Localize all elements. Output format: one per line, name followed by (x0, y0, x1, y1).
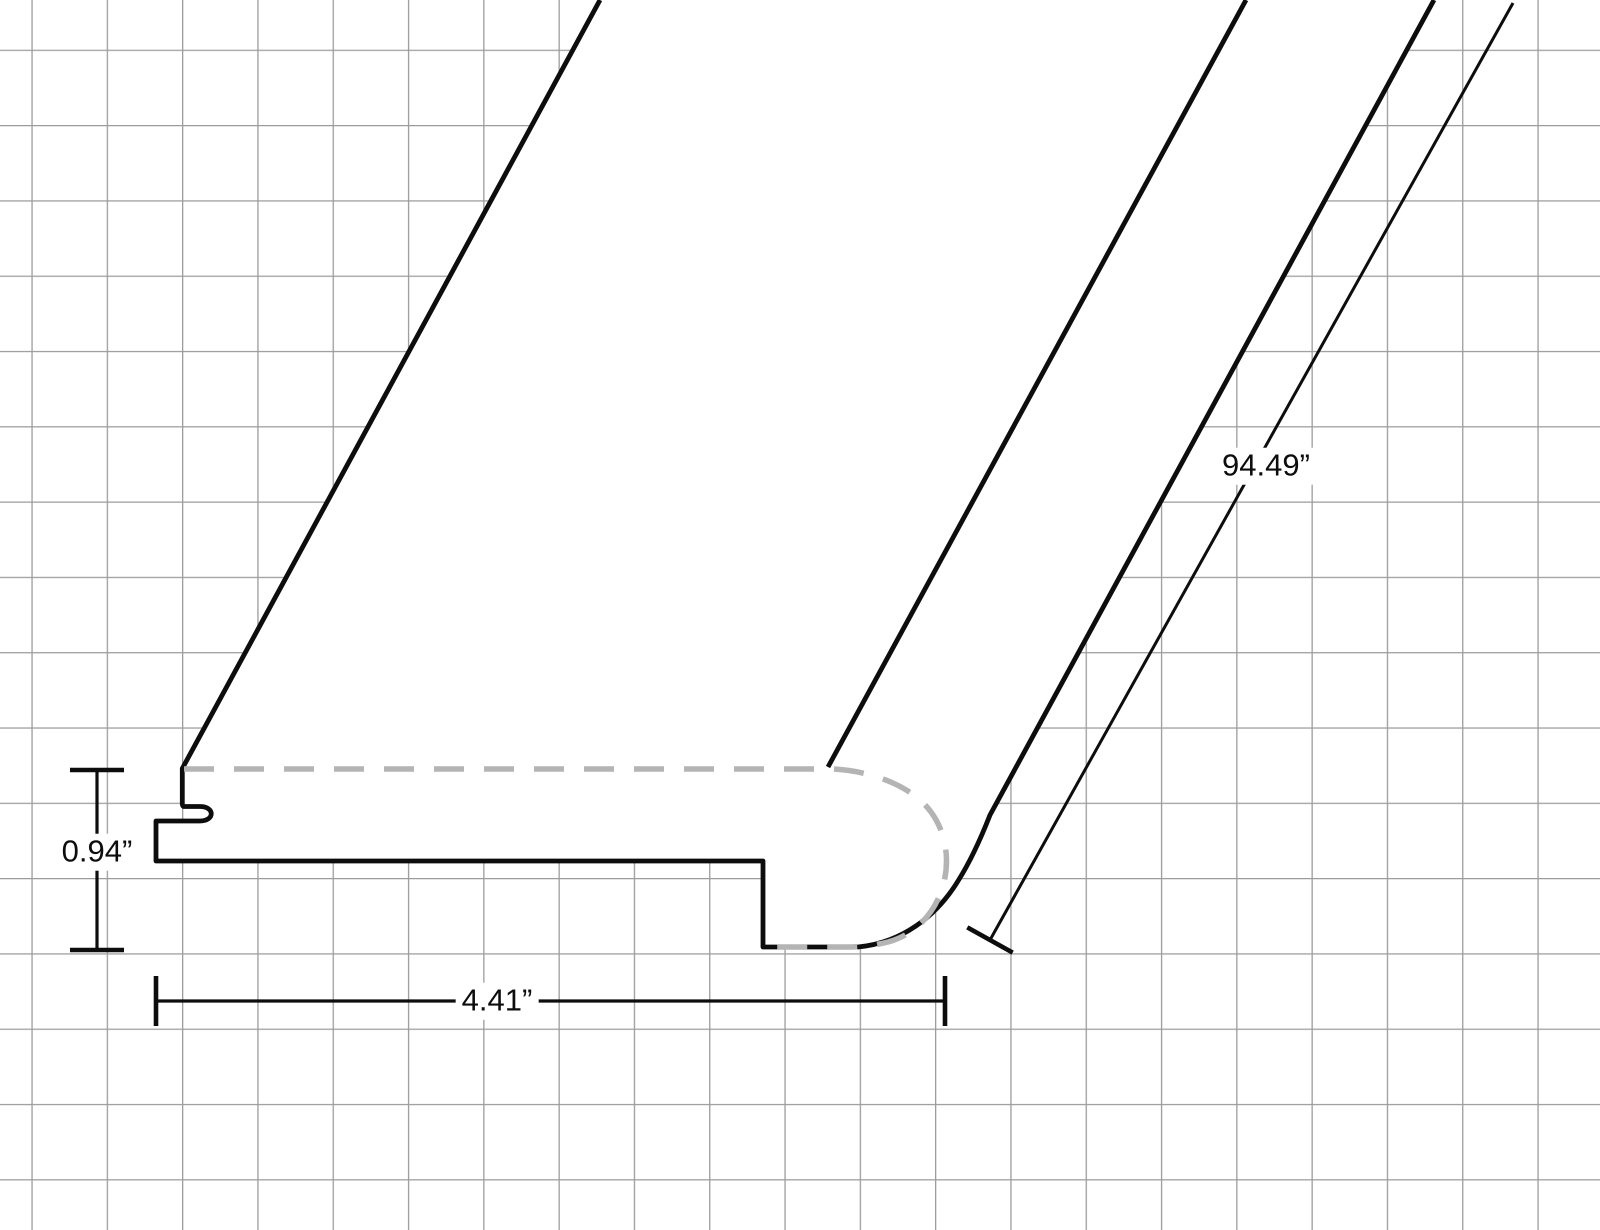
technical-drawing-canvas (0, 0, 1600, 1230)
width-dimension-label: 4.41” (456, 983, 539, 1020)
height-dimension-label: 0.94” (56, 834, 139, 871)
length-dimension-label: 94.49” (1216, 448, 1316, 485)
technical-drawing-stage: 0.94” 4.41” 94.49” (0, 0, 1600, 1230)
